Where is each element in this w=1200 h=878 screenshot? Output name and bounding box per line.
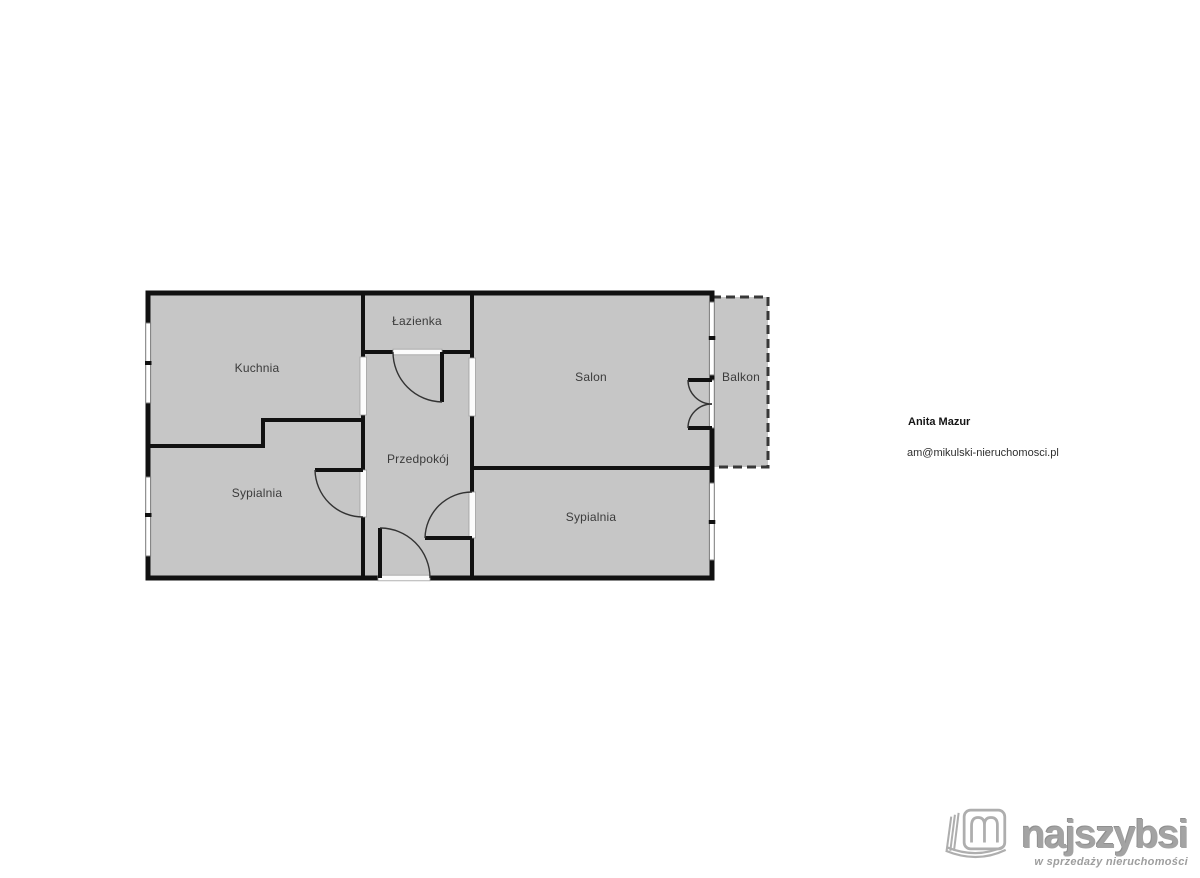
floor-plan-drawing	[0, 0, 1200, 878]
room-label-lazienka: Łazienka	[392, 314, 442, 328]
najszybsi-logo: najszybsi w sprzedaży nieruchomości	[942, 804, 1188, 868]
room-label-sypialnia-right: Sypialnia	[566, 510, 617, 524]
agent-email: am@mikulski-nieruchomosci.pl	[907, 447, 1059, 459]
floor-plan-page: Łazienka Kuchnia Salon Balkon Przedpokój…	[0, 0, 1200, 878]
room-label-sypialnia-left: Sypialnia	[232, 486, 283, 500]
room-label-przedpokoj: Przedpokój	[387, 452, 449, 466]
outer-walls	[148, 293, 712, 578]
logo-tagline-text: w sprzedaży nieruchomości	[1034, 856, 1188, 868]
room-label-kuchnia: Kuchnia	[235, 361, 280, 375]
book-m-logo-icon	[942, 804, 1014, 868]
logo-brand-text: najszybsi	[1021, 816, 1188, 854]
room-label-salon: Salon	[575, 370, 607, 384]
room-label-balkon: Balkon	[722, 370, 760, 384]
agent-name: Anita Mazur	[908, 416, 970, 428]
